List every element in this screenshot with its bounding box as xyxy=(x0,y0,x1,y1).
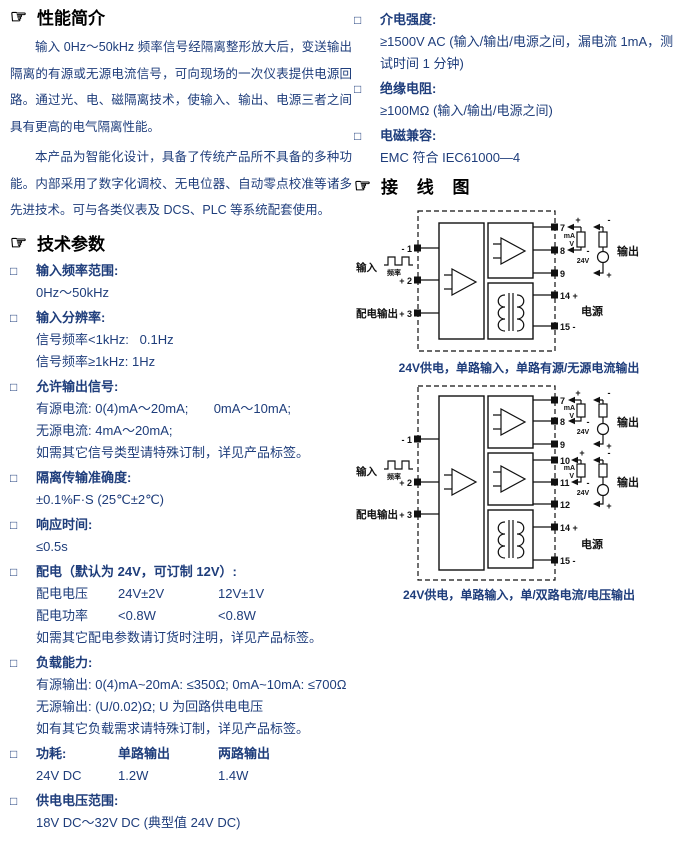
square-bullet-icon: □ xyxy=(10,307,36,373)
wire xyxy=(578,460,581,464)
spec-label: 电磁兼容: xyxy=(380,125,684,147)
milliamp-label: mA xyxy=(564,405,575,412)
spec-value: 有源输出: 0(4)mA~20mA: ≤350Ω; 0mA~10mA: ≤700… xyxy=(36,674,352,696)
resistor-icon xyxy=(599,404,607,417)
wire xyxy=(600,435,603,445)
table-header-cell: 两路输出 xyxy=(218,743,352,765)
table-cell: <0.8W xyxy=(118,605,218,627)
table-cell: 配电电压 xyxy=(36,583,118,605)
square-bullet-icon: □ xyxy=(10,652,36,740)
spec-value: ±0.1%F·S (25℃±2℃) xyxy=(36,489,352,511)
square-bullet-icon: □ xyxy=(10,467,36,511)
table-header-cell: 单路输出 xyxy=(118,743,218,765)
polarity-sign: + xyxy=(575,215,580,225)
output-label: 输出 xyxy=(617,415,639,429)
wire xyxy=(578,477,581,482)
milliamp-label: mA xyxy=(564,465,575,472)
output-block xyxy=(488,223,533,278)
polarity-sign: + xyxy=(606,501,611,511)
terminal-9 xyxy=(551,441,558,448)
table-cell: 12V±1V xyxy=(218,583,352,605)
spec-value: 18V DC～32V DC (典型值 24V DC) xyxy=(36,812,352,834)
wire xyxy=(600,400,603,404)
intro-paragraph: 输入 0Hz～50kHz 频率信号经隔离整形放大后，变送输出隔离的有源或无源电流… xyxy=(10,34,352,140)
volt-label: V xyxy=(569,241,574,248)
terminal-8 xyxy=(551,418,558,425)
spec-label: 配电（默认为 24V，可订制 12V）: xyxy=(36,561,352,583)
pointing-hand-icon: ☞ xyxy=(10,233,27,255)
polarity-sign: - xyxy=(608,215,611,225)
arrow-left-icon xyxy=(593,501,600,507)
arrow-left-icon xyxy=(593,224,600,230)
terminal-label: 15 - xyxy=(560,556,576,566)
terminal-9 xyxy=(551,270,558,277)
spec-label: 输入分辨率: xyxy=(36,307,352,329)
square-bullet-icon: □ xyxy=(354,78,380,122)
frequency-label: 频率 xyxy=(387,268,401,277)
spec-value: 0Hz～50kHz xyxy=(36,282,352,304)
section-wiring-heading: ☞ 接 线 图 xyxy=(354,177,684,199)
polarity-sign: + xyxy=(575,388,580,398)
square-wave-icon xyxy=(384,257,413,265)
polarity-sign: - xyxy=(587,246,590,256)
wire xyxy=(600,227,603,232)
spec-value: EMC 符合 IEC61000—4 xyxy=(380,147,684,169)
terminal-11 xyxy=(551,479,558,486)
input-label: 输入 xyxy=(356,261,377,274)
spec-value: 如有其它负载需求请特殊订制，详见产品标签。 xyxy=(36,718,352,740)
24v-label: 24V xyxy=(577,490,590,497)
polarity-sign: + xyxy=(579,448,584,458)
spec-item: □ 响应时间: ≤0.5s xyxy=(10,514,352,558)
diagram-2-caption: 24V供电，单路输入，单/双路电流/电压输出 xyxy=(354,586,684,603)
terminal-label: 9 xyxy=(560,269,565,279)
polarity-sign: + xyxy=(606,270,611,280)
left-column: ☞ 性能简介 输入 0Hz～50kHz 频率信号经隔离整形放大后，变送输出隔离的… xyxy=(10,6,352,834)
table-cell: 1.4W xyxy=(218,765,352,787)
arrow-left-icon xyxy=(567,224,574,230)
square-bullet-icon: □ xyxy=(354,9,380,75)
pointing-hand-icon: ☞ xyxy=(10,7,27,29)
arrow-left-icon xyxy=(593,397,600,403)
spec-label: 负载能力: xyxy=(36,652,352,674)
spec-value: ≥1500V AC (输入/输出/电源之间，漏电流 1mA，测试时间 1 分钟) xyxy=(380,31,684,75)
spec-item: □ 电磁兼容: EMC 符合 IEC61000—4 xyxy=(354,125,684,169)
right-column: □ 介电强度: ≥1500V AC (输入/输出/电源之间，漏电流 1mA，测试… xyxy=(354,6,684,609)
terminal-12 xyxy=(551,501,558,508)
spec-item: □ 允许输出信号: 有源电流: 0(4)mA～20mA; 0mA～10mA; 无… xyxy=(10,376,352,464)
terminal-2 xyxy=(414,479,421,486)
terminal-3 xyxy=(414,310,421,317)
arrow-left-icon xyxy=(593,457,600,463)
spec-label: 允许输出信号: xyxy=(36,376,352,398)
resistor-icon xyxy=(577,404,585,417)
spec-label: 供电电压范围: xyxy=(36,790,352,812)
terminal-10 xyxy=(551,457,558,464)
spec-item: □ 功耗: 单路输出 两路输出 24V DC 1.2W 1.4W xyxy=(10,743,352,787)
resistor-icon xyxy=(599,464,607,477)
terminal-label: + 2 xyxy=(399,276,412,286)
wiring-diagram-1: - 1 + 2 + 3 输入 频率 配电输出 7 8 9 xyxy=(354,205,684,376)
spec-item: □ 输入频率范围: 0Hz～50kHz xyxy=(10,260,352,304)
section-title: 接 线 图 xyxy=(381,177,476,199)
spec-label: 介电强度: xyxy=(380,9,684,31)
spec-value: ≥100MΩ (输入/输出/电源之间) xyxy=(380,100,684,122)
diagram-1-caption: 24V供电，单路输入，单路有源/无源电流输出 xyxy=(354,359,684,376)
terminal-label: 8 xyxy=(560,417,565,427)
power-source-icon xyxy=(598,424,609,435)
milliamp-label: mA xyxy=(564,233,575,240)
square-bullet-icon: □ xyxy=(10,260,36,304)
table-cell: 24V±2V xyxy=(118,583,218,605)
terminal-1 xyxy=(414,436,421,443)
spec-item: □ 配电（默认为 24V，可订制 12V）: 配电电压 24V±2V 12V±1… xyxy=(10,561,352,649)
terminal-label: 14 + xyxy=(560,523,578,533)
output-label: 输出 xyxy=(617,475,639,489)
terminal-label: + 3 xyxy=(399,510,412,520)
spec-item: □ 绝缘电阻: ≥100MΩ (输入/输出/电源之间) xyxy=(354,78,684,122)
spec-value: 无源输出: (U/0.02)Ω; U 为回路供电电压 xyxy=(36,696,352,718)
square-bullet-icon: □ xyxy=(354,125,380,169)
square-wave-icon xyxy=(384,461,413,469)
section-title: 技术参数 xyxy=(37,234,105,256)
spec-item: □ 隔离传输准确度: ±0.1%F·S (25℃±2℃) xyxy=(10,467,352,511)
terminal-label: 9 xyxy=(560,440,565,450)
wire xyxy=(600,263,603,274)
spec-item: □ 介电强度: ≥1500V AC (输入/输出/电源之间，漏电流 1mA，测试… xyxy=(354,9,684,75)
power-label: 电源 xyxy=(581,304,603,318)
arrow-left-icon xyxy=(593,270,600,276)
power-source-icon xyxy=(598,485,609,496)
spec-value: ≤0.5s xyxy=(36,536,352,558)
input-block xyxy=(439,223,484,339)
square-bullet-icon: □ xyxy=(10,376,36,464)
output-label: 输出 xyxy=(617,244,639,258)
volt-label: V xyxy=(569,473,574,480)
wire xyxy=(421,248,439,313)
power-label: 电源 xyxy=(581,537,603,551)
section-title: 性能简介 xyxy=(37,8,105,30)
terminal-label: + 2 xyxy=(399,478,412,488)
terminal-14 xyxy=(551,524,558,531)
wiring-diagram-2-svg: - 1 + 2 + 3 输入 频率 配电输出 xyxy=(354,382,674,584)
terminal-label: 12 xyxy=(560,500,570,510)
power-source-icon xyxy=(598,252,609,263)
polarity-sign: - xyxy=(587,478,590,488)
wire xyxy=(533,400,551,560)
arrow-left-icon xyxy=(593,441,600,447)
wire xyxy=(533,227,551,326)
wire xyxy=(421,439,439,514)
power-block xyxy=(488,510,533,568)
spec-item: □ 负载能力: 有源输出: 0(4)mA~20mA: ≤350Ω; 0mA~10… xyxy=(10,652,352,740)
spec-label: 绝缘电阻: xyxy=(380,78,684,100)
terminal-3 xyxy=(414,511,421,518)
spec-value: 如需其它信号类型请特殊订制，详见产品标签。 xyxy=(36,442,352,464)
terminal-14 xyxy=(551,292,558,299)
spec-value: 信号频率<1kHz: 0.1Hz xyxy=(36,329,352,351)
table-cell: 配电功率 xyxy=(36,605,118,627)
wiring-section: ☞ 接 线 图 xyxy=(354,177,684,603)
section-performance-heading: ☞ 性能简介 xyxy=(10,8,352,30)
spec-value: 如需其它配电参数请订货时注明，详见产品标签。 xyxy=(36,627,352,649)
pointing-hand-icon: ☞ xyxy=(354,176,371,198)
spec-table-row: 24V DC 1.2W 1.4W xyxy=(36,765,352,787)
polarity-sign: - xyxy=(608,448,611,458)
input-label: 输入 xyxy=(356,465,377,478)
terminal-8 xyxy=(551,247,558,254)
table-cell: <0.8W xyxy=(218,605,352,627)
spec-table-row: 配电电压 24V±2V 12V±1V xyxy=(36,583,352,605)
terminal-label: 8 xyxy=(560,246,565,256)
square-bullet-icon: □ xyxy=(10,790,36,834)
terminal-2 xyxy=(414,277,421,284)
wiring-diagram-2: - 1 + 2 + 3 输入 频率 配电输出 xyxy=(354,382,684,603)
spec-label: 输入频率范围: xyxy=(36,260,352,282)
terminal-label: 11 xyxy=(560,478,570,488)
wire xyxy=(600,460,603,464)
power-block xyxy=(488,283,533,339)
terminal-7 xyxy=(551,224,558,231)
spec-value: 有源电流: 0(4)mA～20mA; 0mA～10mA; xyxy=(36,398,352,420)
spec-table-row: 配电功率 <0.8W <0.8W xyxy=(36,605,352,627)
wire xyxy=(600,496,603,505)
square-bullet-icon: □ xyxy=(10,514,36,558)
wire xyxy=(575,400,581,404)
square-bullet-icon: □ xyxy=(10,561,36,649)
arrow-left-icon xyxy=(571,457,578,463)
spec-label: 隔离传输准确度: xyxy=(36,467,352,489)
intro-paragraph: 本产品为智能化设计，具备了传统产品所不具备的多种功能。内部采用了数字化调校、无电… xyxy=(10,144,352,224)
input-block xyxy=(439,396,484,570)
terminal-7 xyxy=(551,397,558,404)
polarity-sign: - xyxy=(587,417,590,427)
resistor-icon xyxy=(577,232,585,247)
terminal-1 xyxy=(414,245,421,252)
resistor-icon xyxy=(577,464,585,477)
24v-label: 24V xyxy=(577,258,590,265)
table-cell: 24V DC xyxy=(36,765,118,787)
aux-output-label: 配电输出 xyxy=(356,307,398,320)
terminal-label: 7 xyxy=(560,223,565,233)
terminal-15 xyxy=(551,557,558,564)
terminal-15 xyxy=(551,323,558,330)
terminal-label: - 1 xyxy=(401,435,412,445)
resistor-icon xyxy=(599,232,607,247)
polarity-sign: - xyxy=(608,388,611,398)
square-bullet-icon: □ xyxy=(10,743,36,787)
spec-item: □ 输入分辨率: 信号频率<1kHz: 0.1Hz 信号频率≥1kHz: 1Hz xyxy=(10,307,352,373)
frequency-label: 频率 xyxy=(387,472,401,481)
terminal-label: - 1 xyxy=(401,244,412,254)
spec-label: 响应时间: xyxy=(36,514,352,536)
arrow-left-icon xyxy=(568,397,575,403)
aux-output-label: 配电输出 xyxy=(356,508,398,521)
24v-label: 24V xyxy=(577,429,590,436)
wire xyxy=(575,417,581,421)
spec-label: 功耗: xyxy=(36,743,118,765)
terminal-label: 15 - xyxy=(560,322,576,332)
spec-table-header: 功耗: 单路输出 两路输出 xyxy=(36,743,352,765)
spec-item: □ 供电电压范围: 18V DC～32V DC (典型值 24V DC) xyxy=(10,790,352,834)
section-tech-heading: ☞ 技术参数 xyxy=(10,234,352,256)
wiring-diagram-1-svg: - 1 + 2 + 3 输入 频率 配电输出 7 8 9 xyxy=(354,205,674,357)
spec-value: 信号频率≥1kHz: 1Hz xyxy=(36,351,352,373)
terminal-label: + 3 xyxy=(399,309,412,319)
wire xyxy=(574,227,581,232)
spec-value: 无源电流: 4mA～20mA; xyxy=(36,420,352,442)
table-cell: 1.2W xyxy=(118,765,218,787)
terminal-label: 14 + xyxy=(560,291,578,301)
